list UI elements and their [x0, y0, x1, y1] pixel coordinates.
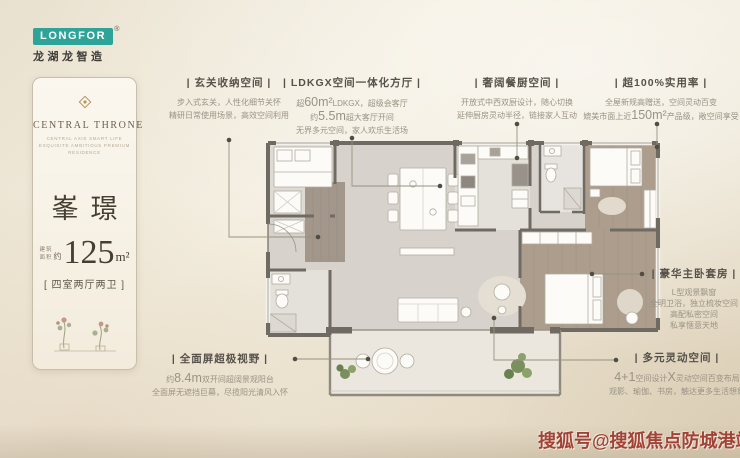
annotation-title: | 奢阔餐厨空间 | — [442, 75, 592, 90]
annotation-line: 无界多元空间，家人欢乐生活场 — [272, 124, 432, 137]
annotation-body: 4+1空间设计X灵动空间百变布局观影、瑜伽、书房，触达更多生活想象 — [607, 371, 740, 398]
card-tagline-line2: EXQUISITE AMBITIOUS PREMIUM RESIDENCE — [33, 142, 136, 156]
annotation-title: | 豪华主卧套房 | — [645, 266, 740, 281]
annotation-body: L型观景飘窗全明卫浴，独立梳妆空间高配私密空间私享惬意天地 — [645, 287, 740, 331]
annotation-body: 约8.4m双开间超阔景观阳台全面屏无遮挡巨幕，尽揽阳光清风入怀 — [140, 372, 300, 399]
annotation-line: 约5.5m超大客厅开间 — [272, 110, 432, 124]
poster: LONGFOR® 龙湖龙智造 CENTRAL THRONE CENTRAL AX… — [0, 0, 740, 458]
unit-name: 峯璟 — [33, 187, 136, 226]
annotation-body: 超60m²LDKGX，超级会客厅约5.5m超大客厅开间无界多元空间，家人欢乐生活… — [272, 96, 432, 137]
area-unit: m² — [116, 249, 130, 265]
annotation-ldkgx-hall: | LDKGX空间一体化方厅 | 超60m²LDKGX，超级会客厅约5.5m超大… — [272, 75, 432, 137]
annotation-line: 高配私密空间 — [645, 309, 740, 320]
watermark: 搜狐号@搜狐焦点防城港站 — [538, 427, 740, 453]
annotation-efficiency: | 超100%实用率 | 全屋新规高赠送，空间灵动百变媲美市面上近150m²产品… — [576, 75, 740, 123]
annotation-flex-space: | 多元灵动空间 | 4+1空间设计X灵动空间百变布局观影、瑜伽、书房，触达更多… — [607, 350, 740, 398]
annotation-line: 私享惬意天地 — [645, 320, 740, 331]
annotation-title: | 全面屏超极视野 | — [140, 351, 300, 366]
diamond-ornament-icon — [33, 94, 136, 115]
botanical-sketch-icon — [48, 300, 122, 359]
area-label: 建筑 面积 — [39, 247, 52, 262]
annotation-title: | 多元灵动空间 | — [607, 350, 740, 365]
annotation-title: | 超100%实用率 | — [576, 75, 740, 90]
unit-area: 建筑 面积 约 125 m² — [33, 238, 136, 269]
area-label-line2: 面积 — [39, 255, 52, 262]
annotation-line: 全面屏无遮挡巨幕，尽揽阳光清风入怀 — [140, 386, 300, 399]
annotation-line: L型观景飘窗 — [645, 287, 740, 298]
annotation-body: 全屋新规高赠送，空间灵动百变媲美市面上近150m²产品级，敞空间享受 — [576, 96, 740, 123]
card-tagline: CENTRAL AXIS SMART LIFE EXQUISITE AMBITI… — [33, 135, 136, 157]
brand-logo: LONGFOR® 龙湖龙智造 — [33, 26, 119, 64]
card-brand-title: CENTRAL THRONE — [33, 120, 136, 131]
annotation-line: 开放式中西双厨设计，随心切换 — [442, 96, 592, 109]
area-value: 125 — [64, 238, 115, 269]
annotation-line: 4+1空间设计X灵动空间百变布局 — [607, 371, 740, 385]
brand-subtitle: 龙湖龙智造 — [33, 48, 119, 64]
annotation-master-suite: | 豪华主卧套房 | L型观景飘窗全明卫浴，独立梳妆空间高配私密空间私享惬意天地 — [645, 266, 740, 331]
annotation-line: 媲美市面上近150m²产品级，敞空间享受 — [576, 109, 740, 123]
area-label-line1: 建筑 — [39, 247, 52, 254]
annotation-line: 约8.4m双开间超阔景观阳台 — [140, 372, 300, 386]
annotation-kitchen-dining: | 奢阔餐厨空间 | 开放式中西双厨设计，随心切换延伸厨房灵动半径，链接家人互动 — [442, 75, 592, 122]
annotation-line: 全明卫浴，独立梳妆空间 — [645, 298, 740, 309]
annotation-line: 观影、瑜伽、书房，触达更多生活想象 — [607, 385, 740, 398]
longfor-logo-box: LONGFOR — [33, 28, 113, 45]
annotation-line: 超60m²LDKGX，超级会客厅 — [272, 96, 432, 110]
annotation-body: 开放式中西双厨设计，随心切换延伸厨房灵动半径，链接家人互动 — [442, 96, 592, 122]
area-approx: 约 — [54, 251, 62, 262]
annotation-line: 延伸厨房灵动半径，链接家人互动 — [442, 109, 592, 122]
annotation-panorama-balcony: | 全面屏超极视野 | 约8.4m双开间超阔景观阳台全面屏无遮挡巨幕，尽揽阳光清… — [140, 351, 300, 399]
annotation-title: | LDKGX空间一体化方厅 | — [272, 75, 432, 90]
unit-layout: [ 四室两厅两卫 ] — [33, 276, 136, 291]
card-tagline-line1: CENTRAL AXIS SMART LIFE — [33, 135, 136, 142]
unit-info-card: CENTRAL THRONE CENTRAL AXIS SMART LIFE E… — [32, 77, 137, 370]
registered-mark: ® — [114, 26, 119, 33]
